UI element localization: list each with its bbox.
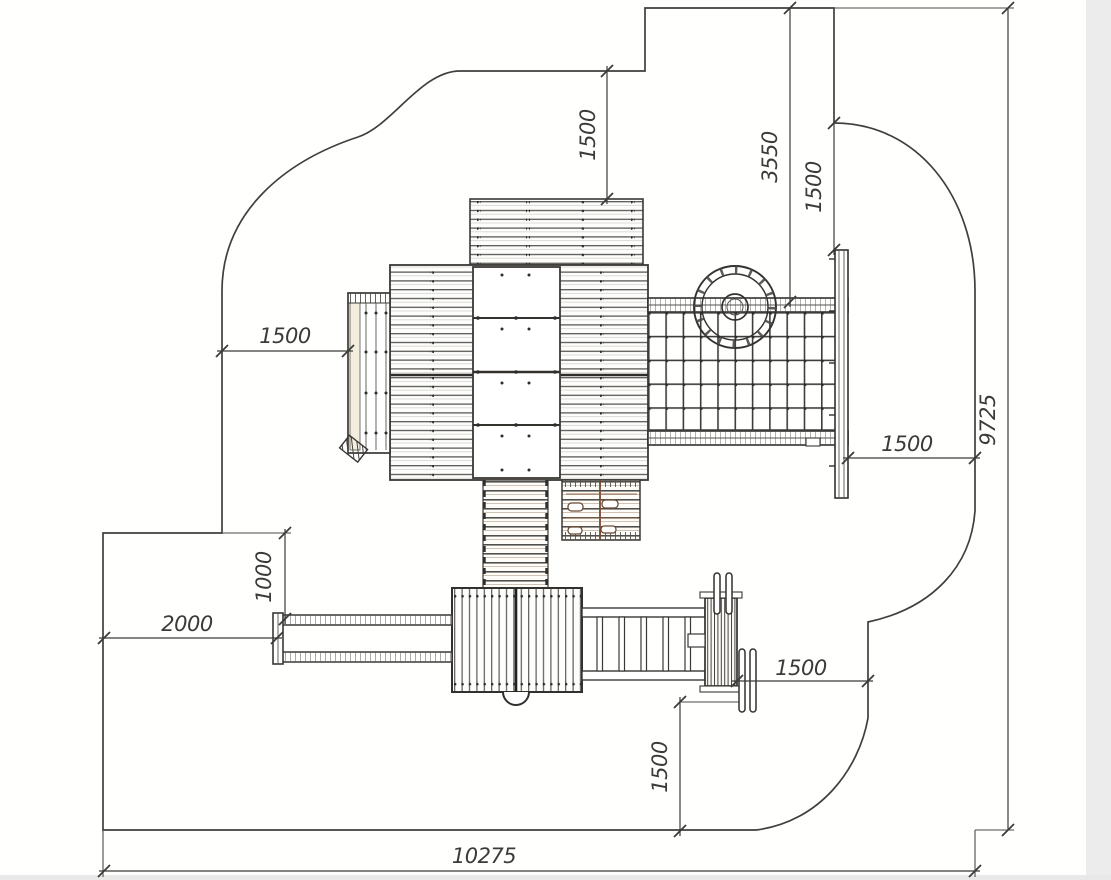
bridge-walkway [483, 480, 548, 588]
dim-3550: 3550 [758, 131, 782, 183]
climbing-net [648, 312, 838, 431]
dim-2000: 2000 [161, 612, 213, 636]
ladder-bracket [688, 634, 705, 647]
scan-edge-right [1086, 0, 1111, 880]
dim-bottom-v-1500: 1500 [648, 741, 672, 793]
dim-right-1500: 1500 [881, 432, 933, 456]
tower-panels [473, 267, 560, 478]
site-plan-drawing: 1500 3550 1500 1500 1000 2000 1500 1500 … [0, 0, 1111, 880]
lower-platform [452, 588, 582, 705]
dim-9725: 9725 [976, 394, 1000, 446]
picnic-table [562, 480, 640, 540]
dim-top-right-1500: 1500 [802, 161, 826, 213]
dim-left-1500: 1500 [259, 324, 311, 348]
dim-1000: 1000 [252, 551, 276, 603]
top-deck [470, 199, 643, 265]
dim-top-1500: 1500 [576, 109, 600, 161]
scan-edge-bottom [0, 875, 1111, 880]
dim-bottom-h-1500: 1500 [775, 656, 827, 680]
dim-10275: 10275 [452, 844, 516, 868]
plan-sheet: 1500 3550 1500 1500 1000 2000 1500 1500 … [0, 0, 1111, 880]
